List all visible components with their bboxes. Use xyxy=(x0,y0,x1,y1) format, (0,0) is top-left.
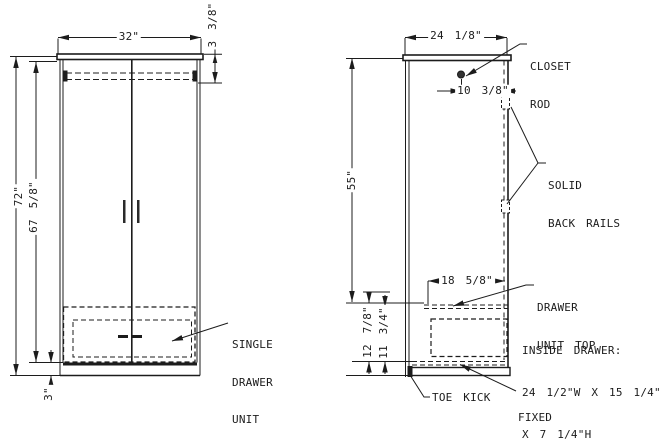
front-bottom-shelf-band xyxy=(63,363,197,366)
solid-back-rails-label: SOLID BACK RAILS xyxy=(548,155,620,255)
closet-rod-label: CLOSET ROD xyxy=(530,36,573,136)
side-back-rail-top xyxy=(502,96,510,109)
arrow xyxy=(213,54,218,63)
side-view xyxy=(403,55,511,377)
side-top-panel xyxy=(403,55,511,61)
solid-back-rails-label-line1: SOLID xyxy=(548,180,620,193)
side-inside-drawer-outline xyxy=(431,319,507,357)
inside-drawer-note-line1: INSIDE DRAWER: xyxy=(522,344,659,358)
front-height-dim-text: 72" xyxy=(13,184,26,208)
single-drawer-unit-label-line2: DRAWER xyxy=(232,377,275,390)
drawer-top-height-dim-text: 12 7/8" xyxy=(362,304,375,360)
front-interior-height-dim-text: 67 5/8" xyxy=(28,179,41,235)
drawer-unit-top-leader xyxy=(453,285,534,306)
drawer-top-depth-dim-text: 18 5/8" xyxy=(439,275,495,288)
side-depth-dim-text: 24 1/8" xyxy=(428,30,484,43)
front-view xyxy=(57,54,203,376)
single-drawer-unit-label-line3: UNIT xyxy=(232,414,275,427)
front-rod-bracket-left xyxy=(63,71,68,82)
solid-back-rails-label-line2: BACK RAILS xyxy=(548,218,620,231)
front-rod-drop-dim-text: 3 3/8" xyxy=(207,1,220,50)
front-door-handle-right xyxy=(137,200,140,223)
front-width-dim-text: 32" xyxy=(117,31,141,44)
fixed-bottom-shelf-label: FIXED BOTTOM SHELF xyxy=(518,387,561,441)
toe-kick-leader xyxy=(410,375,430,397)
front-drawer-unit-outline xyxy=(64,307,196,362)
fixed-bottom-shelf-label-line1: FIXED xyxy=(518,412,561,425)
front-door-handle-left xyxy=(123,200,126,223)
back-rails-leader-lower xyxy=(507,163,538,204)
toe-kick-label: TOE KICK xyxy=(432,392,491,405)
front-toe-kick-dim-text: 3" xyxy=(43,385,56,403)
front-rod-bracket-right xyxy=(193,71,198,82)
drawer-box-height-dim-text: 11 3/4" xyxy=(378,305,391,361)
closet-rod-label-line1: CLOSET xyxy=(530,61,573,74)
side-closet-rod-end xyxy=(458,71,465,78)
rod-height-dim-text: 55" xyxy=(346,168,359,192)
front-top-panel xyxy=(57,54,203,60)
drawer-unit-top-label-line1: DRAWER xyxy=(537,302,596,315)
front-dim-rod-drop xyxy=(198,47,222,83)
rod-setback-dim-text: 10 3/8" xyxy=(455,85,511,98)
side-base xyxy=(410,368,510,376)
cabinet-drawing: 32" 3 3/8" 72" 67 5/8" 3" SINGLE DRAWER … xyxy=(0,0,659,441)
closet-rod-label-line2: ROD xyxy=(530,99,573,112)
single-drawer-unit-label: SINGLE DRAWER UNIT xyxy=(232,314,275,441)
single-drawer-unit-label-line1: SINGLE xyxy=(232,339,275,352)
